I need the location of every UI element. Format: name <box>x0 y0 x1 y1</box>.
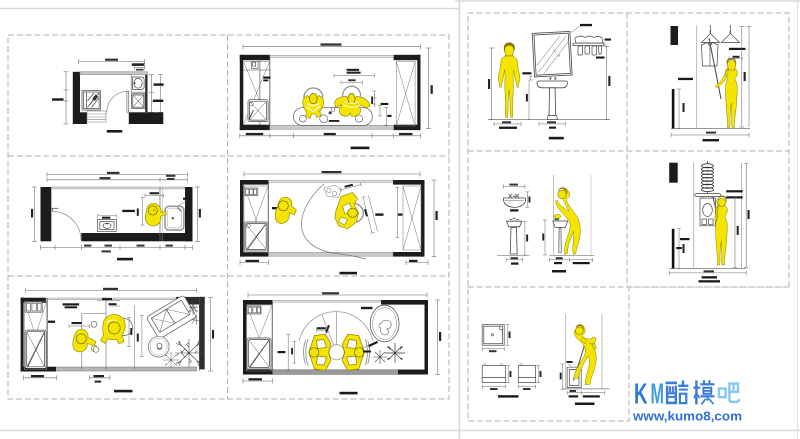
svg-text:www,kumo8,com: www,kumo8,com <box>632 409 742 424</box>
svg-text:M: M <box>651 379 665 411</box>
svg-text:K: K <box>634 379 648 411</box>
